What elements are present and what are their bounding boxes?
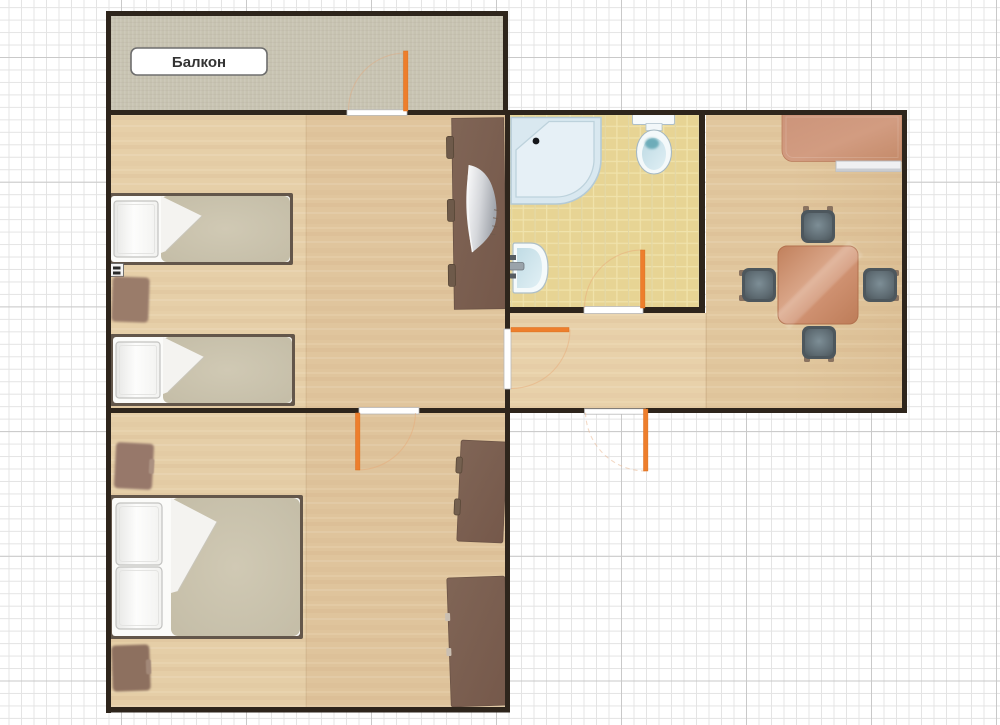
svg-text:Балкон: Балкон xyxy=(172,54,226,71)
